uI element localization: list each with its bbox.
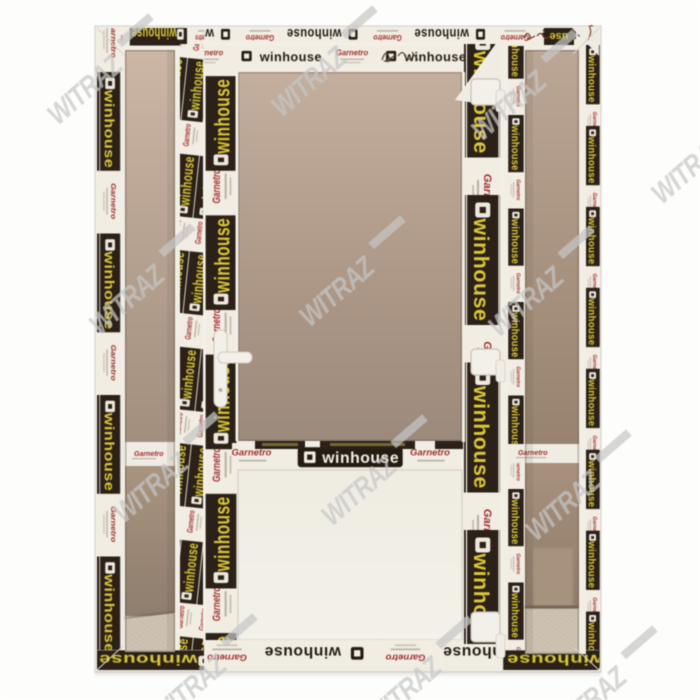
svg-text:Garnetro: Garnetro: [518, 450, 548, 457]
